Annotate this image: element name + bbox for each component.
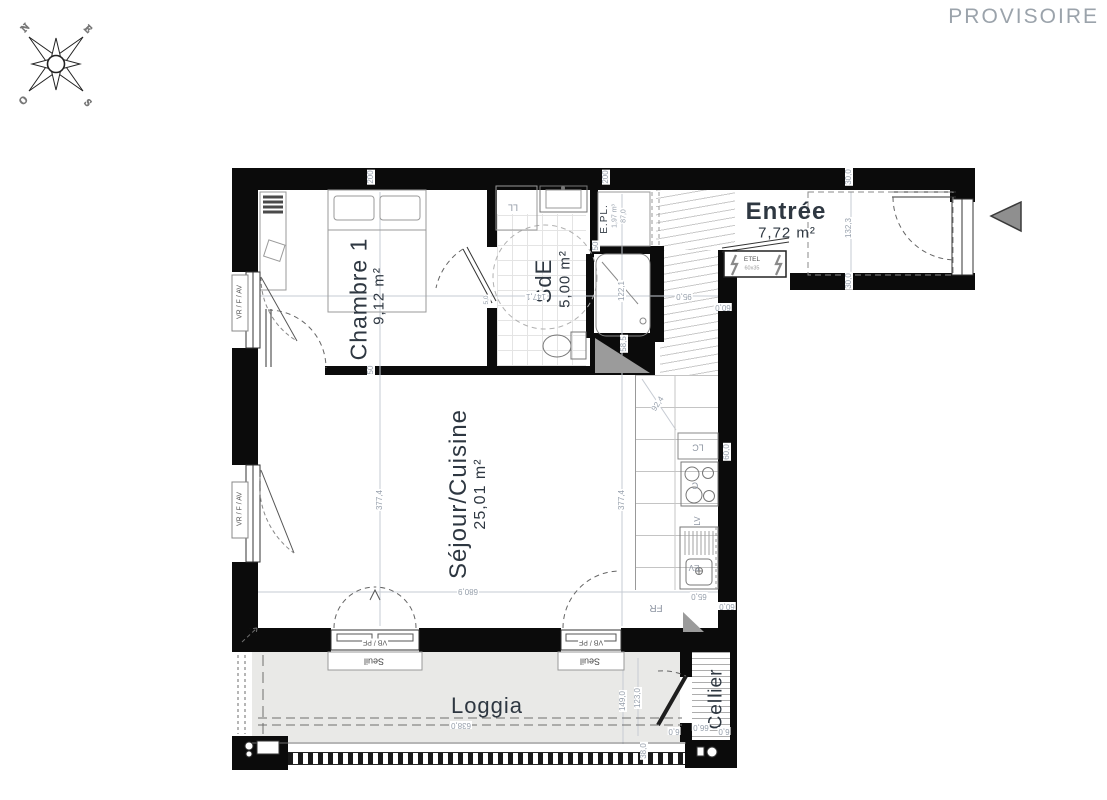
sill-label: Seuil: [364, 657, 384, 666]
dimension-label: 87,0: [621, 208, 628, 224]
floorplan-page: { "header": { "status": "PROVISOIRE" }, …: [0, 0, 1107, 800]
room-label-cellier: Cellier: [707, 669, 726, 730]
desk-and-chair: [260, 192, 286, 290]
dimension-label: 377,4: [618, 489, 626, 511]
chambre-door: [266, 309, 326, 368]
wall-shower-left: [586, 254, 594, 338]
entree-closet-dashed: [808, 192, 953, 275]
wall-entree-bottom-stub: [718, 273, 724, 290]
dimension-label: 132,3: [845, 217, 853, 239]
dimension-label: 30,0: [845, 168, 853, 186]
dimension-label: 122,1: [618, 280, 626, 302]
wall-sde-bottom: [490, 366, 593, 375]
sill-label: Seuil: [580, 657, 600, 666]
dishwasher-label: LV: [694, 516, 702, 525]
room-area-chambre: 9,12 m²: [372, 267, 387, 325]
dimension-label: 50: [367, 365, 375, 376]
wall-cellier-right: [730, 652, 737, 742]
room-label-chambre: Chambre 1: [348, 238, 371, 361]
dimension-label: 66,0: [692, 723, 710, 731]
wall-entree-bottom: [790, 273, 975, 290]
kitchen-counter-grid: [635, 375, 719, 590]
wall-partition-b: [487, 308, 497, 370]
dimension-label: 50: [592, 241, 600, 252]
room-label-loggia: Loggia: [451, 695, 523, 717]
wall-shower-right: [650, 246, 664, 342]
dimension-label: 38,0: [640, 742, 648, 760]
wall-sejour-bottom-c: [621, 628, 737, 652]
wall-partition-a: [487, 190, 497, 247]
dimension-label: 6,0: [717, 727, 730, 735]
dimension-label: 6,0: [667, 727, 680, 735]
cooktop-label: C: [692, 481, 699, 490]
dimension-label: 149,0: [619, 690, 627, 712]
compass-south: S: [82, 97, 94, 109]
wall-left-b: [232, 348, 258, 465]
loggia-railing: [288, 752, 686, 765]
dimension-label: 147,1: [525, 292, 547, 300]
room-area-sejour: 25,01 m²: [473, 458, 489, 529]
sink-label: EV: [689, 563, 700, 571]
dimension-label: 95,0: [675, 292, 693, 300]
status-watermark: PROVISOIRE: [948, 5, 1099, 29]
electrical-panel-label: ETEL: [744, 257, 760, 264]
dimension-label: 30,0: [845, 272, 853, 290]
hall-hatch-upper: [656, 190, 735, 250]
tall-unit-label: LC: [692, 443, 704, 452]
dimension-label: 123,0: [634, 687, 642, 709]
electrical-panel-size: 60x35: [745, 266, 760, 272]
dimension-label: 200: [602, 169, 610, 184]
placard-volume: 1,97 m³: [612, 203, 619, 229]
room-label-sejour: Séjour/Cuisine: [447, 409, 471, 579]
dimension-label: 58,5: [620, 335, 628, 353]
wall-entree-right-a: [950, 190, 975, 202]
dimension-label: 200: [367, 169, 375, 184]
compass-east: E: [82, 23, 94, 35]
dimension-label: 5,0: [484, 294, 491, 305]
dimension-label: 60,0: [714, 303, 732, 311]
dimension-label: 680,9: [457, 587, 479, 595]
wall-sejour-bottom-a: [232, 628, 331, 652]
room-area-sde: 5,00 m²: [558, 250, 573, 308]
window-bottom-label: VB / PF: [362, 639, 388, 646]
dimension-label: 60,0: [718, 602, 736, 610]
compass-west: O: [17, 94, 30, 107]
wall-left-a: [232, 190, 258, 272]
compass-rose: N E O S: [17, 22, 93, 109]
room-label-placard: E.PL.: [600, 204, 610, 233]
dimension-label: 60,0: [723, 443, 731, 461]
window-roller-label: VR / F / AV: [237, 285, 244, 319]
dimension-label: 377,4: [376, 489, 384, 511]
room-area-entree: 7,72 m²: [758, 226, 816, 241]
compass-north: N: [19, 22, 32, 35]
wall-cellier-corner: [685, 740, 737, 768]
window-bottom-label: VB / PF: [578, 639, 604, 646]
hall-hatch-lower: [660, 250, 718, 375]
fridge-label: FR: [649, 602, 662, 612]
wall-sejour-bottom-b: [419, 628, 561, 652]
wall-entree-right-b: [950, 274, 975, 290]
wall-chambre-bottom: [325, 366, 490, 375]
entree-door: [892, 192, 973, 275]
dimension-label: 638,0: [450, 721, 472, 729]
entrance-arrow-icon: [991, 202, 1021, 231]
dimension-label: 65,0: [690, 592, 708, 600]
lightning-bolt-icon: [776, 255, 781, 275]
window-roller-label: VR / F / AV: [237, 492, 244, 526]
room-label-entree: Entrée: [746, 200, 827, 224]
wall-cellier-stub-a: [680, 652, 692, 677]
washing-machine-label: LL: [508, 203, 518, 212]
wall-loggia-corner: [232, 736, 288, 770]
